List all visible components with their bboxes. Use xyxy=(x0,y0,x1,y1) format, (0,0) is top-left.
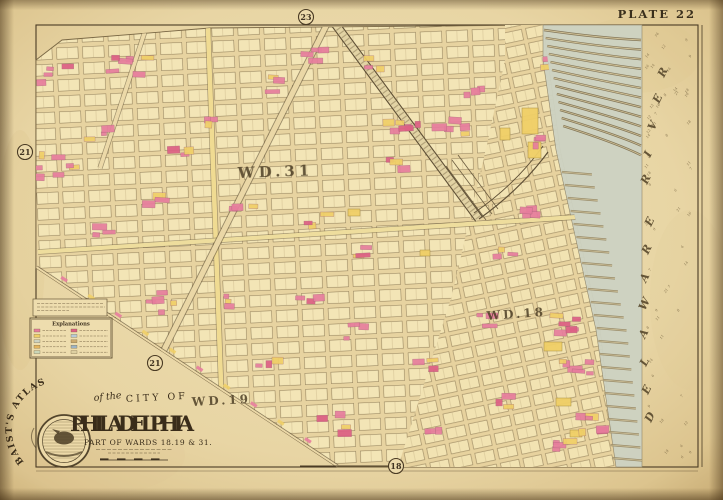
legend-box: Explanations xyxy=(30,318,112,358)
svg-text:23: 23 xyxy=(300,12,312,22)
atlas-plate-photo: 7912146182111816791214618211181679121461… xyxy=(0,0,723,500)
ward-31-label: WD.31 xyxy=(237,161,314,182)
cartouche-city-name: PHILADELPHIA xyxy=(70,411,195,436)
ref-circle-left: 21 xyxy=(18,145,33,160)
note-box xyxy=(33,299,107,316)
ref-circle-top: 23 xyxy=(299,10,314,25)
svg-text:21: 21 xyxy=(19,147,30,157)
legend-title: Explanations xyxy=(52,322,90,328)
svg-text:21: 21 xyxy=(149,358,160,368)
atlas-map-plate: 7912146182111816791214618211181679121461… xyxy=(0,0,723,500)
svg-text:18: 18 xyxy=(390,461,402,471)
cartouche-subtitle: PART OF WARDS 18.19 & 31. xyxy=(84,438,212,447)
ref-circle-center: 21 xyxy=(148,356,163,371)
